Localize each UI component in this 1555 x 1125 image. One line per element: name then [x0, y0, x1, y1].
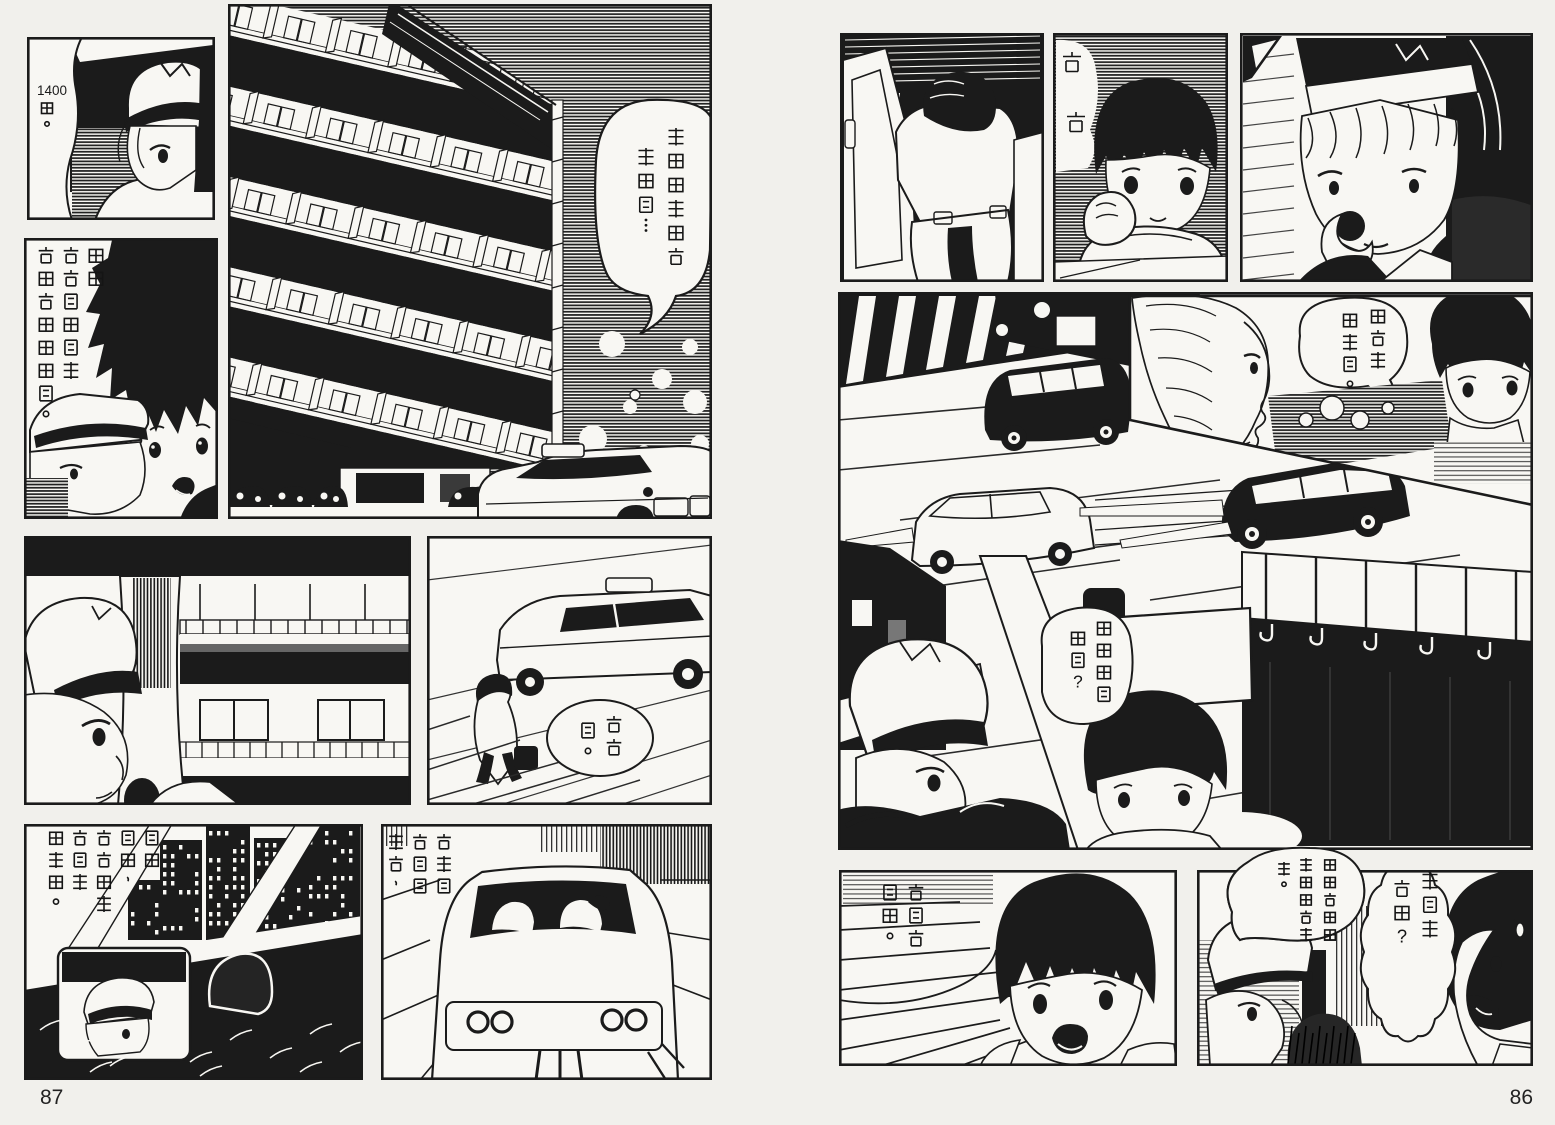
svg-text:86: 86: [1510, 1086, 1533, 1109]
svg-text:?: ?: [1073, 672, 1083, 692]
svg-text:1400: 1400: [37, 83, 67, 98]
svg-text:?: ?: [1397, 925, 1407, 946]
svg-text:87: 87: [40, 1086, 63, 1109]
